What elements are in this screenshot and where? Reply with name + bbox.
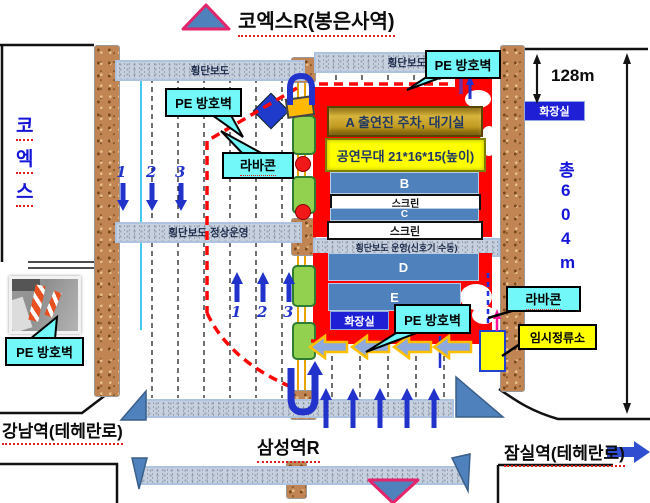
cone-callout-left: 라바콘 [222, 152, 294, 179]
total-char-5: m [560, 253, 575, 273]
total-char-2: 6 [561, 181, 570, 201]
pe-wall-label-2: PE 방호벽 [435, 55, 492, 74]
temp-stop-label: 임시정류소 [530, 329, 585, 346]
flow-arrows-down-top [117, 183, 187, 211]
pe-wall-callout-photo: PE 방호벽 [5, 337, 84, 366]
pe-wall-callout-top-right: PE 방호벽 [425, 50, 501, 79]
top-station-triangle [183, 5, 229, 29]
station-triangles [183, 5, 418, 503]
flow-num-top-3: 3 [175, 163, 185, 181]
flow-num-top-1: 1 [116, 163, 126, 181]
pe-wall-label-3: PE 방호벽 [404, 310, 461, 329]
total-char-1: 총 [559, 156, 575, 181]
site-diagram: 횡단보도 횡단보도 횡단보도 정상운영 횡단보도 운영(신호기 수동) A 출연… [0, 0, 650, 503]
cone-callout-right: 라바콘 [506, 286, 581, 312]
bottom-station-triangle [369, 480, 418, 503]
measure-arrow-128m [533, 54, 541, 104]
coex-char-3: 스 [16, 177, 33, 207]
bottom-station-title: 삼성역R [257, 434, 320, 463]
flow-arrows-up-mid [231, 272, 295, 302]
pe-wall-label-4: PE 방호벽 [16, 342, 73, 361]
coex-char-2: 엑 [16, 144, 33, 174]
flow-num-mid-3: 3 [283, 303, 293, 321]
right-station-text: 잠실역(테헤란로) [504, 439, 625, 467]
cone-label-2: 라바콘 [526, 289, 562, 310]
u-turn-arrow [291, 361, 323, 412]
left-station-title: 강남역(테헤란로) [2, 417, 123, 445]
coex-char-1: 코 [16, 111, 33, 141]
total-char-3: 0 [561, 205, 570, 225]
flow-num-top-2: 2 [146, 163, 156, 181]
pe-wall-callout-top-left: PE 방호벽 [165, 88, 242, 117]
right-station-title: 잠실역(테헤란로) [504, 439, 625, 467]
pe-wall-callout-stage: PE 방호벽 [394, 304, 471, 334]
total-char-4: 4 [561, 229, 570, 249]
coex-char-1-text: 코 [16, 111, 33, 141]
top-station-title: 코엑스R(봉은사역) [238, 5, 395, 37]
callout-pointers [30, 72, 456, 352]
temp-stop-callout: 임시정류소 [518, 324, 597, 350]
measure-arrow-604m [623, 53, 631, 414]
coex-char-2-text: 엑 [16, 144, 33, 174]
flow-num-mid-1: 1 [231, 303, 241, 321]
width-measure-label: 128m [551, 66, 594, 86]
magenta-up-arrow [493, 309, 501, 331]
pe-wall-label-1: PE 방호벽 [175, 93, 232, 112]
left-station-text: 강남역(테헤란로) [2, 417, 123, 445]
bottom-station-text: 삼성역R [257, 434, 320, 463]
top-station-text: 코엑스R(봉은사역) [238, 5, 395, 37]
flow-arrows-up-crosswalk [320, 388, 440, 428]
coex-char-3-text: 스 [16, 177, 33, 207]
cone-label-1: 라바콘 [240, 155, 276, 176]
flow-num-mid-2: 2 [257, 303, 267, 321]
